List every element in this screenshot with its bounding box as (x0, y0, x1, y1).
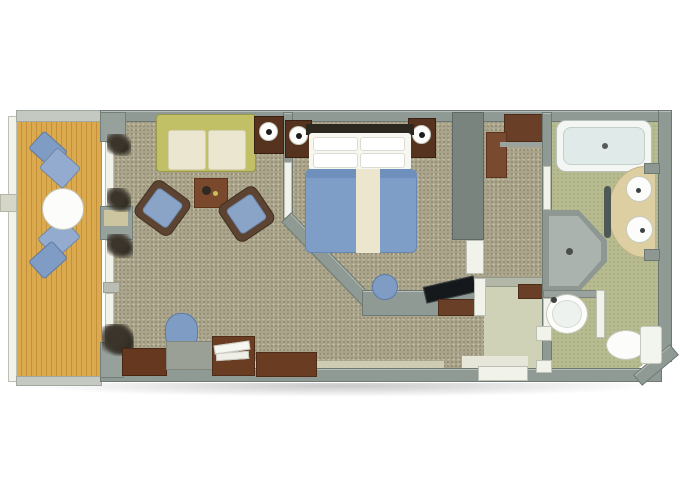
window-plant-3 (107, 234, 133, 258)
balcony-table (42, 188, 84, 230)
vanity-bracket-2 (644, 249, 660, 261)
bed-pillow-3 (313, 153, 358, 168)
living-lamp-dot (266, 129, 272, 135)
desk-surface (166, 341, 216, 370)
toilet-divider-wall (596, 290, 605, 338)
washbasin-inner (552, 300, 582, 328)
entry-door (478, 366, 528, 381)
coffee-table-item-2 (213, 191, 218, 196)
balcony-top-wall (16, 110, 102, 122)
bedroom-sliding-door (284, 162, 292, 218)
floor-plan-canvas (0, 0, 680, 487)
sink-1-faucet (636, 188, 641, 193)
closet-rod (500, 142, 546, 147)
vanity-bracket-1 (644, 163, 660, 174)
doorframe-pillar-2 (536, 360, 552, 373)
vanity-stool (372, 274, 398, 300)
sofa-cushion-2 (208, 130, 246, 170)
shower-drain (566, 248, 573, 255)
bottom-wall (100, 368, 662, 382)
window-pier-mid-top (104, 210, 128, 226)
console-cabinet (438, 299, 476, 316)
right-wall (658, 110, 672, 362)
bed-pillow-1 (313, 137, 358, 151)
sink-2-faucet (640, 228, 645, 233)
lamp-right-dot (419, 132, 425, 138)
wardrobe-block (452, 112, 484, 240)
balcony-railing (8, 116, 17, 382)
washbasin-faucet (551, 297, 557, 303)
sofa-cushion-1 (168, 130, 206, 170)
suite-floor-plan (0, 0, 680, 487)
toilet-tank (640, 326, 662, 364)
vanity-mirror (604, 186, 611, 238)
railing-bracket (0, 194, 17, 212)
window-plant-2 (107, 188, 131, 212)
wardrobe-pillar (466, 240, 484, 274)
plan-shadow (24, 383, 656, 397)
bed-pillow-2 (360, 137, 405, 151)
bathtub-drain (602, 143, 608, 149)
desk-cabinet-2 (256, 352, 317, 377)
closet-cabinet-side (486, 132, 507, 178)
corridor-west-wall (474, 278, 486, 316)
lamp-left-dot (296, 133, 302, 139)
balcony-bottom-wall (16, 376, 102, 386)
bathroom-door-upper (543, 166, 551, 210)
window-shelf (103, 282, 120, 293)
bed-pillow-4 (360, 153, 405, 168)
window-plant-1 (107, 134, 131, 156)
doorframe-pillar-1 (536, 326, 552, 341)
desk-cabinet-1 (122, 348, 167, 376)
bed-runner (356, 169, 380, 253)
coffee-table-item-1 (202, 186, 211, 195)
